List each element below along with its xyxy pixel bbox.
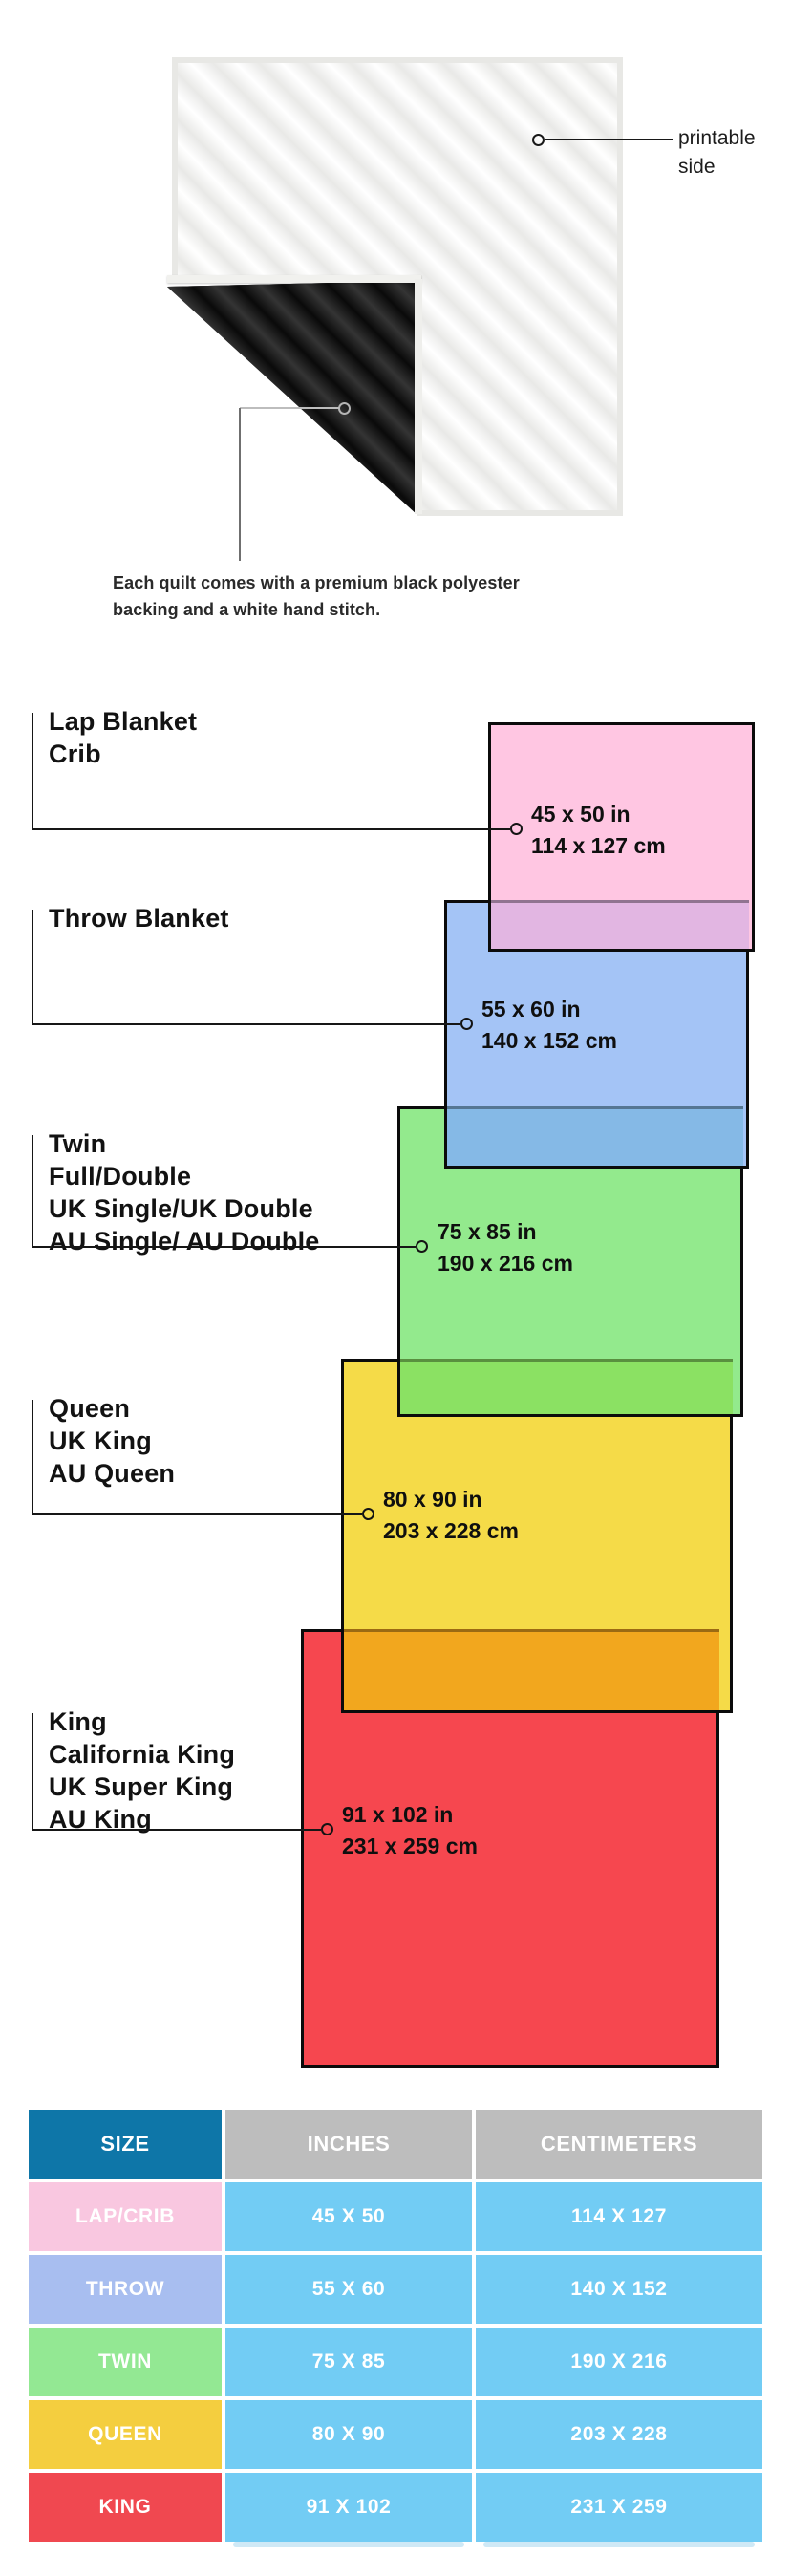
label-queen: Queen UK King AU Queen	[49, 1392, 175, 1490]
size-twin: 75 x 85 in 190 x 216 cm	[438, 1216, 573, 1279]
black-backing-pointer-line-h	[240, 407, 339, 409]
elbow-queen-marker-icon	[362, 1508, 374, 1520]
quilt-fold-binding-right	[415, 279, 422, 514]
overlap-lap-throw	[491, 900, 749, 949]
overlap-queen-king	[344, 1629, 719, 1710]
size-centimeters: 140 x 152 cm	[481, 1025, 617, 1057]
row-centimeters-cell: 190 X 216	[476, 2328, 762, 2396]
row-label-cell: THROW	[29, 2255, 222, 2324]
printable-side-pointer-line	[545, 139, 673, 140]
row-centimeters-cell: 203 X 228	[476, 2400, 762, 2469]
label-line: Queen	[49, 1392, 175, 1425]
elbow-lap-h	[32, 828, 510, 830]
quilt-black-backing-fold	[167, 279, 417, 514]
elbow-throw-v	[32, 910, 33, 1025]
row-label-cell: QUEEN	[29, 2400, 222, 2469]
elbow-twin-v	[32, 1135, 33, 1248]
overlap-twin-queen	[400, 1359, 733, 1414]
table-header-inches: INCHES	[225, 2110, 472, 2179]
table-header-size: SIZE	[29, 2110, 222, 2179]
label-line: King	[49, 1706, 235, 1738]
size-inches: 91 x 102 in	[342, 1799, 478, 1831]
table-header-row: SIZE INCHES CENTIMETERS	[29, 2110, 762, 2179]
size-queen: 80 x 90 in 203 x 228 cm	[383, 1484, 519, 1547]
elbow-king-v	[32, 1713, 33, 1831]
size-king: 91 x 102 in 231 x 259 cm	[342, 1799, 478, 1862]
label-twin: Twin Full/Double UK Single/UK Double AU …	[49, 1127, 320, 1257]
table-shadow	[483, 2542, 755, 2547]
row-label-cell: LAP/CRIB	[29, 2182, 222, 2251]
printable-side-marker-icon	[532, 134, 545, 146]
size-inches: 55 x 60 in	[481, 994, 617, 1025]
label-line: Full/Double	[49, 1160, 320, 1192]
quilt-size-infographic: printable side Each quilt comes with a p…	[0, 0, 791, 2576]
quilt-fold-binding-top	[167, 275, 421, 283]
table-header-centimeters: CENTIMETERS	[476, 2110, 762, 2179]
row-centimeters-cell: 114 X 127	[476, 2182, 762, 2251]
label-line: AU Single/ AU Double	[49, 1225, 320, 1257]
row-inches-cell: 91 X 102	[225, 2473, 472, 2542]
size-inches: 45 x 50 in	[531, 799, 666, 830]
elbow-throw-h	[32, 1023, 460, 1025]
elbow-queen-v	[32, 1400, 33, 1515]
black-backing-pointer-line-v	[239, 408, 241, 561]
table-row-king: KING 91 X 102 231 X 259	[29, 2473, 762, 2542]
label-line: Throw Blanket	[49, 902, 229, 934]
size-inches: 75 x 85 in	[438, 1216, 573, 1248]
printable-side-label: printable side	[678, 124, 781, 182]
label-line: Twin	[49, 1127, 320, 1160]
size-lap-crib: 45 x 50 in 114 x 127 cm	[531, 799, 666, 862]
elbow-twin-marker-icon	[416, 1240, 428, 1253]
label-throw: Throw Blanket	[49, 902, 229, 934]
size-table: SIZE INCHES CENTIMETERS LAP/CRIB 45 X 50…	[29, 2110, 762, 2545]
elbow-king-h	[32, 1829, 321, 1831]
row-inches-cell: 55 X 60	[225, 2255, 472, 2324]
label-line: AU Queen	[49, 1457, 175, 1490]
hero-caption: Each quilt comes with a premium black po…	[113, 569, 577, 623]
size-throw: 55 x 60 in 140 x 152 cm	[481, 994, 617, 1057]
elbow-king-marker-icon	[321, 1823, 333, 1835]
size-centimeters: 203 x 228 cm	[383, 1515, 519, 1547]
size-inches: 80 x 90 in	[383, 1484, 519, 1515]
table-row-lap-crib: LAP/CRIB 45 X 50 114 X 127	[29, 2182, 762, 2251]
label-line: Crib	[49, 738, 197, 770]
elbow-queen-h	[32, 1513, 362, 1515]
row-inches-cell: 45 X 50	[225, 2182, 472, 2251]
label-line: UK Single/UK Double	[49, 1192, 320, 1225]
elbow-throw-marker-icon	[460, 1018, 473, 1030]
label-line: UK Super King	[49, 1771, 235, 1803]
row-label-cell: KING	[29, 2473, 222, 2542]
table-row-twin: TWIN 75 X 85 190 X 216	[29, 2328, 762, 2396]
label-line: California King	[49, 1738, 235, 1771]
black-backing-marker-icon	[338, 402, 351, 415]
label-king: King California King UK Super King AU Ki…	[49, 1706, 235, 1835]
row-centimeters-cell: 140 X 152	[476, 2255, 762, 2324]
elbow-lap-v	[32, 713, 33, 830]
table-shadow	[233, 2542, 464, 2547]
row-label-cell: TWIN	[29, 2328, 222, 2396]
size-centimeters: 231 x 259 cm	[342, 1831, 478, 1862]
label-line: UK King	[49, 1425, 175, 1457]
elbow-twin-h	[32, 1246, 416, 1248]
table-row-throw: THROW 55 X 60 140 X 152	[29, 2255, 762, 2324]
label-line: Lap Blanket	[49, 705, 197, 738]
row-inches-cell: 80 X 90	[225, 2400, 472, 2469]
label-lap-crib: Lap Blanket Crib	[49, 705, 197, 770]
size-centimeters: 114 x 127 cm	[531, 830, 666, 862]
overlap-throw-twin	[447, 1106, 743, 1166]
row-centimeters-cell: 231 X 259	[476, 2473, 762, 2542]
table-row-queen: QUEEN 80 X 90 203 X 228	[29, 2400, 762, 2469]
row-inches-cell: 75 X 85	[225, 2328, 472, 2396]
size-centimeters: 190 x 216 cm	[438, 1248, 573, 1279]
elbow-lap-marker-icon	[510, 823, 523, 835]
